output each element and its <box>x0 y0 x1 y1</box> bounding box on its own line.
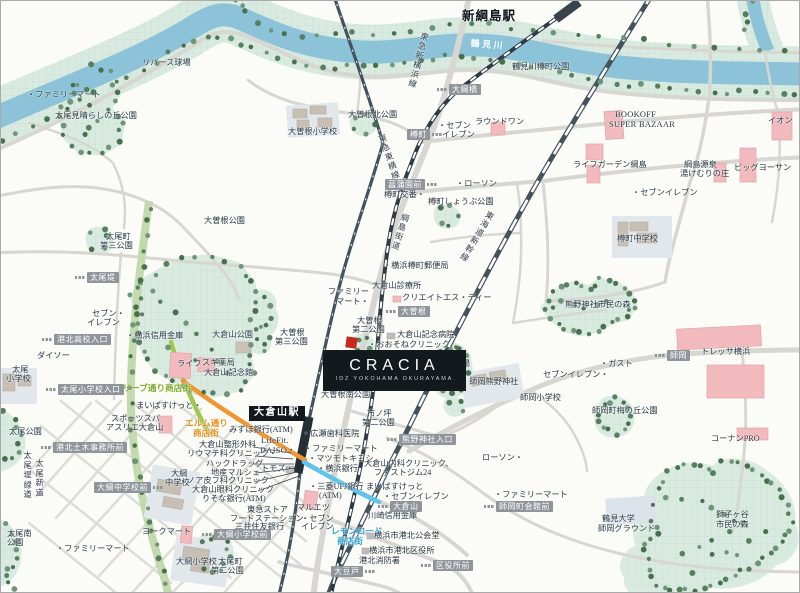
map-label: ローソン・ <box>482 454 523 463</box>
map-label: 公園 <box>7 539 23 548</box>
map-label: ダイソー <box>37 352 70 361</box>
map-label: ライフ <box>177 360 202 369</box>
bus-stop-badge: 区役所前 <box>421 560 473 571</box>
bus-stop-name: 熊野神社入口 <box>399 434 456 445</box>
map-label: リバース球場 <box>142 59 191 68</box>
map-label: 鶴見川 <box>470 39 505 51</box>
map-label: ・セブンイレブン <box>632 189 698 198</box>
map-label: 新綱島駅 <box>462 10 516 23</box>
map-label: 第二公園 <box>362 419 395 428</box>
bus-stop-badge: 熊野神社入口 <box>387 434 456 445</box>
bus-stop-icon <box>432 133 442 136</box>
map-label: ラウンドワン <box>475 118 524 127</box>
map-label: イレブン <box>87 319 120 328</box>
bus-stop-badge: 大綱橋 <box>437 84 481 95</box>
bus-stop-badge: 師岡町会館前 <box>484 501 553 512</box>
map-label: イレブン <box>442 131 475 140</box>
map-label: 太尾新道 <box>34 459 43 498</box>
map-label: ・横浜樽町郵便局 <box>383 262 449 271</box>
bus-stop-badge: 大綱中学校前 <box>94 482 163 493</box>
map-label: りそな銀行(ATM) <box>202 495 266 504</box>
label-layer: リバース球場・ファミリーマート太尾見晴らしの丘公園鶴見川鶴見川樽町公園新綱島駅大… <box>1 1 800 593</box>
map-label: 大曽根南公園 <box>321 391 370 400</box>
bus-stop-icon <box>365 570 375 573</box>
map-label: 第三公園 <box>275 338 308 347</box>
property-card: CRACIA IDZ YOKOHAMA OKURAYAMA <box>323 350 466 391</box>
map-label: 樽町しょうぶ公園 <box>428 198 494 207</box>
map-label: クリエイトエス・ディー <box>402 294 492 303</box>
map-label: 獅子ヶ谷 <box>716 511 749 520</box>
map-label: トレッサ横浜 <box>701 348 750 357</box>
bus-stop-badge: 菖蒲園前 <box>385 179 437 190</box>
map-label: 第三公園 <box>100 242 133 251</box>
map-label: 大倉山公園 <box>212 331 253 340</box>
bus-stop-icon <box>41 446 51 449</box>
map-label: 太尾公園 <box>9 428 42 437</box>
bus-stop-name: 菖蒲園前 <box>385 179 425 190</box>
map-label: 大倉山記念館 <box>204 369 253 378</box>
map-label: ・おおそねクリニック <box>368 341 450 350</box>
bus-stop-icon <box>437 88 447 91</box>
bus-stop-name: 樽町 <box>407 129 430 140</box>
bus-stop-icon <box>427 183 437 186</box>
map-label: みずほ銀行(ATM) <box>229 426 293 435</box>
bus-stop-name: 大豆戸 <box>331 566 363 577</box>
map-label: まいばすけっと・ <box>136 402 202 411</box>
map-label: 中学校 <box>165 479 190 488</box>
bus-stop-name: 港北高校入口 <box>54 334 111 345</box>
map-label: 大曽根小学校 <box>288 128 337 137</box>
bus-stop-badge: 大倉山 <box>378 501 422 512</box>
map-label: 熊野神社市民の森 <box>565 301 631 310</box>
bus-stop-name: 区役所前 <box>433 560 473 571</box>
map-label: オリーブ通り商店街 <box>114 384 191 393</box>
bus-stop-badge: 港北土木事務所前 <box>41 442 127 453</box>
bus-stop-name: 大綱橋 <box>449 84 481 95</box>
map-label: BOOKOFF <box>615 111 656 120</box>
map-label: 太尾堤緑道 <box>22 451 31 500</box>
bus-stop-name: 大綱中学校前 <box>94 482 151 493</box>
map-label: ・ファミリーマート <box>304 445 378 454</box>
map-label: ・横浜信用金庫 <box>126 332 183 341</box>
map-label: 大曽根公園 <box>204 217 245 226</box>
map-label: 湯けむりの庄 <box>680 170 729 179</box>
bus-stop-icon <box>484 505 494 508</box>
map-label: 綱島街道 <box>389 212 409 252</box>
map-label: セブンイレブン・ <box>543 371 609 380</box>
map-label: トモズ・ <box>261 465 294 474</box>
map-label: ・広瀬歯科医院 <box>302 430 359 439</box>
map-label: コーナンPRO <box>711 435 760 444</box>
bus-stop-name: 師岡町会館前 <box>496 501 553 512</box>
map-label: SUPER BAZAAR <box>609 121 675 130</box>
map-label: 鶴見大学 <box>602 515 635 524</box>
map-label: 港北消防署 <box>359 557 400 566</box>
bus-stop-name: 太尾堤 <box>87 272 119 283</box>
map-label: ・横浜銀行 <box>317 465 358 474</box>
bus-stop-icon <box>386 310 396 313</box>
bus-stop-badge: 樽町 <box>407 129 442 140</box>
map-label: マート・ <box>336 298 369 307</box>
bus-stop-icon <box>421 564 431 567</box>
map-label: イレブン <box>301 523 334 532</box>
map-label: ・ファミリーマート <box>494 491 568 500</box>
map-label: アスリエ大倉山 <box>106 424 163 433</box>
map-label: 商店街 <box>193 429 219 438</box>
map-label: 東急新横浜線 <box>406 31 428 90</box>
map-label: 大曽根北公園 <box>348 111 397 120</box>
bus-stop-badge: 太尾堤 <box>75 272 119 283</box>
map-label: イオン <box>768 117 793 126</box>
bus-stop-icon <box>46 388 56 391</box>
map-label: スギ薬局 <box>202 359 235 368</box>
map-label: 師岡グラウンド <box>598 525 655 534</box>
map-label: 第二公園 <box>352 326 385 335</box>
property-subtitle: IDZ YOKOHAMA OKURAYAMA <box>336 377 453 383</box>
bus-stop-badge: 大綱小学校前 <box>202 529 271 540</box>
map-label: 東海道新幹線 <box>457 209 494 263</box>
bus-stop-badge: 太尾小学校入口 <box>46 384 124 395</box>
map-label: 大倉山駅 <box>249 406 305 421</box>
bus-stop-icon <box>75 276 85 279</box>
map-label: ・ファミリーマート <box>27 91 101 100</box>
map-label: ・ファミリーマート <box>56 545 130 554</box>
map-label: 市民の森 <box>716 521 749 530</box>
map-label: 鶴見川樽町公園 <box>512 63 569 72</box>
map-label: ・師岡熊野神社 <box>461 378 518 387</box>
map-label: ファストジム24 <box>374 469 431 478</box>
map-label: 小学校 <box>6 375 31 384</box>
bus-stop-icon <box>153 486 163 489</box>
map-label: 横浜市港北公会堂 <box>374 532 440 541</box>
bus-stop-icon <box>655 354 665 357</box>
map-label: 師岡町梅の丘公園 <box>592 407 658 416</box>
map-label: 樽町中学校 <box>617 235 658 244</box>
map-label: 樽町交番・ <box>384 191 425 200</box>
map-label: 太尾見晴らしの丘公園 <box>55 112 137 121</box>
bus-stop-icon <box>42 338 52 341</box>
map-label: 東急東横線 <box>376 133 400 182</box>
property-name: CRACIA <box>349 358 439 374</box>
map-label: ファミリー <box>328 288 369 297</box>
map-label: ヨークマート <box>142 528 191 537</box>
bus-stop-badge: 大曽根 <box>386 306 430 317</box>
bus-stop-name: 大曽根 <box>398 306 430 317</box>
map-label: ・ローソン <box>456 180 497 189</box>
map-label: マルエツ <box>297 504 330 513</box>
bus-stop-name: 師岡 <box>667 350 690 361</box>
bus-stop-icon <box>378 505 388 508</box>
map-label: 川崎信用金庫 <box>368 512 417 521</box>
map-container: リバース球場・ファミリーマート太尾見晴らしの丘公園鶴見川鶴見川樽町公園新綱島駅大… <box>0 0 800 593</box>
bus-stop-icon <box>202 533 212 536</box>
bus-stop-badge: 大豆戸 <box>331 566 375 577</box>
map-label: 師岡小学校 <box>520 394 561 403</box>
map-label: ライフガーデン綱島 <box>573 161 647 170</box>
map-label: エルム通り <box>185 419 228 428</box>
bus-stop-name: 港北土木事務所前 <box>53 442 127 453</box>
bus-stop-name: 太尾小学校入口 <box>58 384 124 395</box>
bus-stop-name: 大倉山 <box>390 501 422 512</box>
map-label: 商店街 <box>337 537 363 546</box>
map-label: まいばすけっと <box>366 483 423 492</box>
map-label: 第二公園 <box>211 567 244 576</box>
map-label: ・ガスト <box>600 360 633 369</box>
map-label: 横浜市港北区役所 <box>369 547 435 556</box>
map-label: 大倉山診療所 <box>372 282 421 291</box>
bus-stop-badge: 港北高校入口 <box>42 334 111 345</box>
map-label: リウマチ科クリニック・ <box>187 450 277 459</box>
bus-stop-icon <box>387 438 397 441</box>
map-label: LifeFit. <box>261 437 289 446</box>
bus-stop-name: 大綱小学校前 <box>214 529 271 540</box>
map-label: ビッグヨーサン <box>734 164 791 173</box>
bus-stop-badge: 師岡 <box>655 350 690 361</box>
map-label: (ATM) <box>319 492 342 501</box>
map-label: 大倉山記念病院 <box>397 331 454 340</box>
